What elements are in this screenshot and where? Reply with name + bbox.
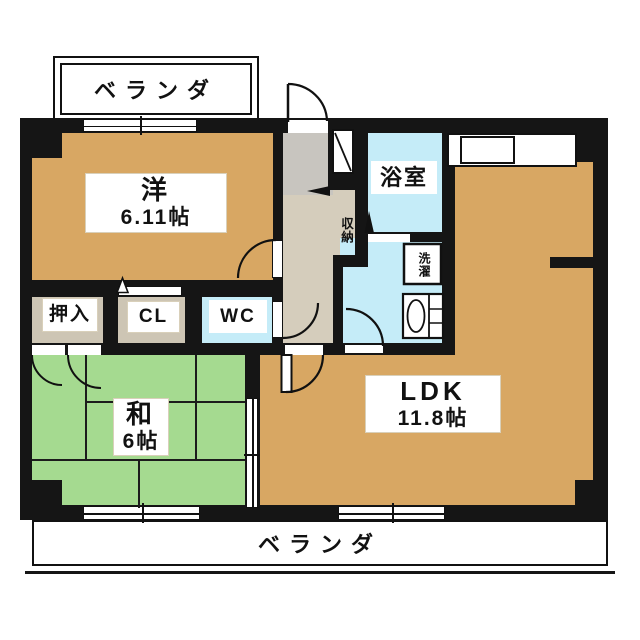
japanese-room-label: 和 6帖 (113, 398, 169, 456)
toilet-door-swing-arc (283, 303, 318, 338)
toilet-label: WC (209, 300, 267, 333)
closet-name: CL (139, 306, 168, 328)
ldk-door-leaf (282, 355, 292, 392)
entrance-door-swing-arc (288, 84, 327, 121)
closet-door-marker (117, 278, 128, 293)
washroom-door-swing-arc (346, 309, 383, 346)
laundry-label: 洗濯 (413, 249, 433, 281)
washbasin-bowl (408, 300, 425, 332)
oshiire-door-swing-arc-right (68, 355, 101, 388)
floor-plan: ベランダ ベランダ (0, 0, 640, 640)
toilet-name: WC (220, 306, 256, 328)
japanese-room-size: 6帖 (123, 430, 160, 454)
oshiire-label: 押入 (42, 298, 98, 332)
bathroom-label: 浴室 (371, 161, 437, 194)
ldk-size: 11.8帖 (398, 407, 469, 431)
western-room-name: 洋 (141, 176, 171, 206)
kitchen-sink (461, 137, 514, 163)
western-door-swing-arc (238, 240, 276, 278)
bathroom-name: 浴室 (380, 165, 428, 190)
ldk-name: LDK (400, 377, 465, 407)
ldk-label: LDK 11.8帖 (365, 375, 501, 433)
closet-label: CL (127, 301, 180, 333)
oshiire-door-swing-arc-left (32, 355, 62, 385)
entrance-step-marker (307, 186, 330, 196)
oshiire-name: 押入 (49, 304, 91, 326)
western-room-size: 6.11帖 (121, 206, 192, 230)
balcony-top-label: ベランダ (63, 64, 249, 114)
western-room-label: 洋 6.11帖 (85, 173, 227, 233)
japanese-room-name: 和 (126, 400, 156, 430)
balcony-bottom-label: ベランダ (32, 522, 608, 564)
bathroom-door-leaf-marker (365, 211, 375, 233)
storage-label: 収納 (336, 202, 356, 258)
